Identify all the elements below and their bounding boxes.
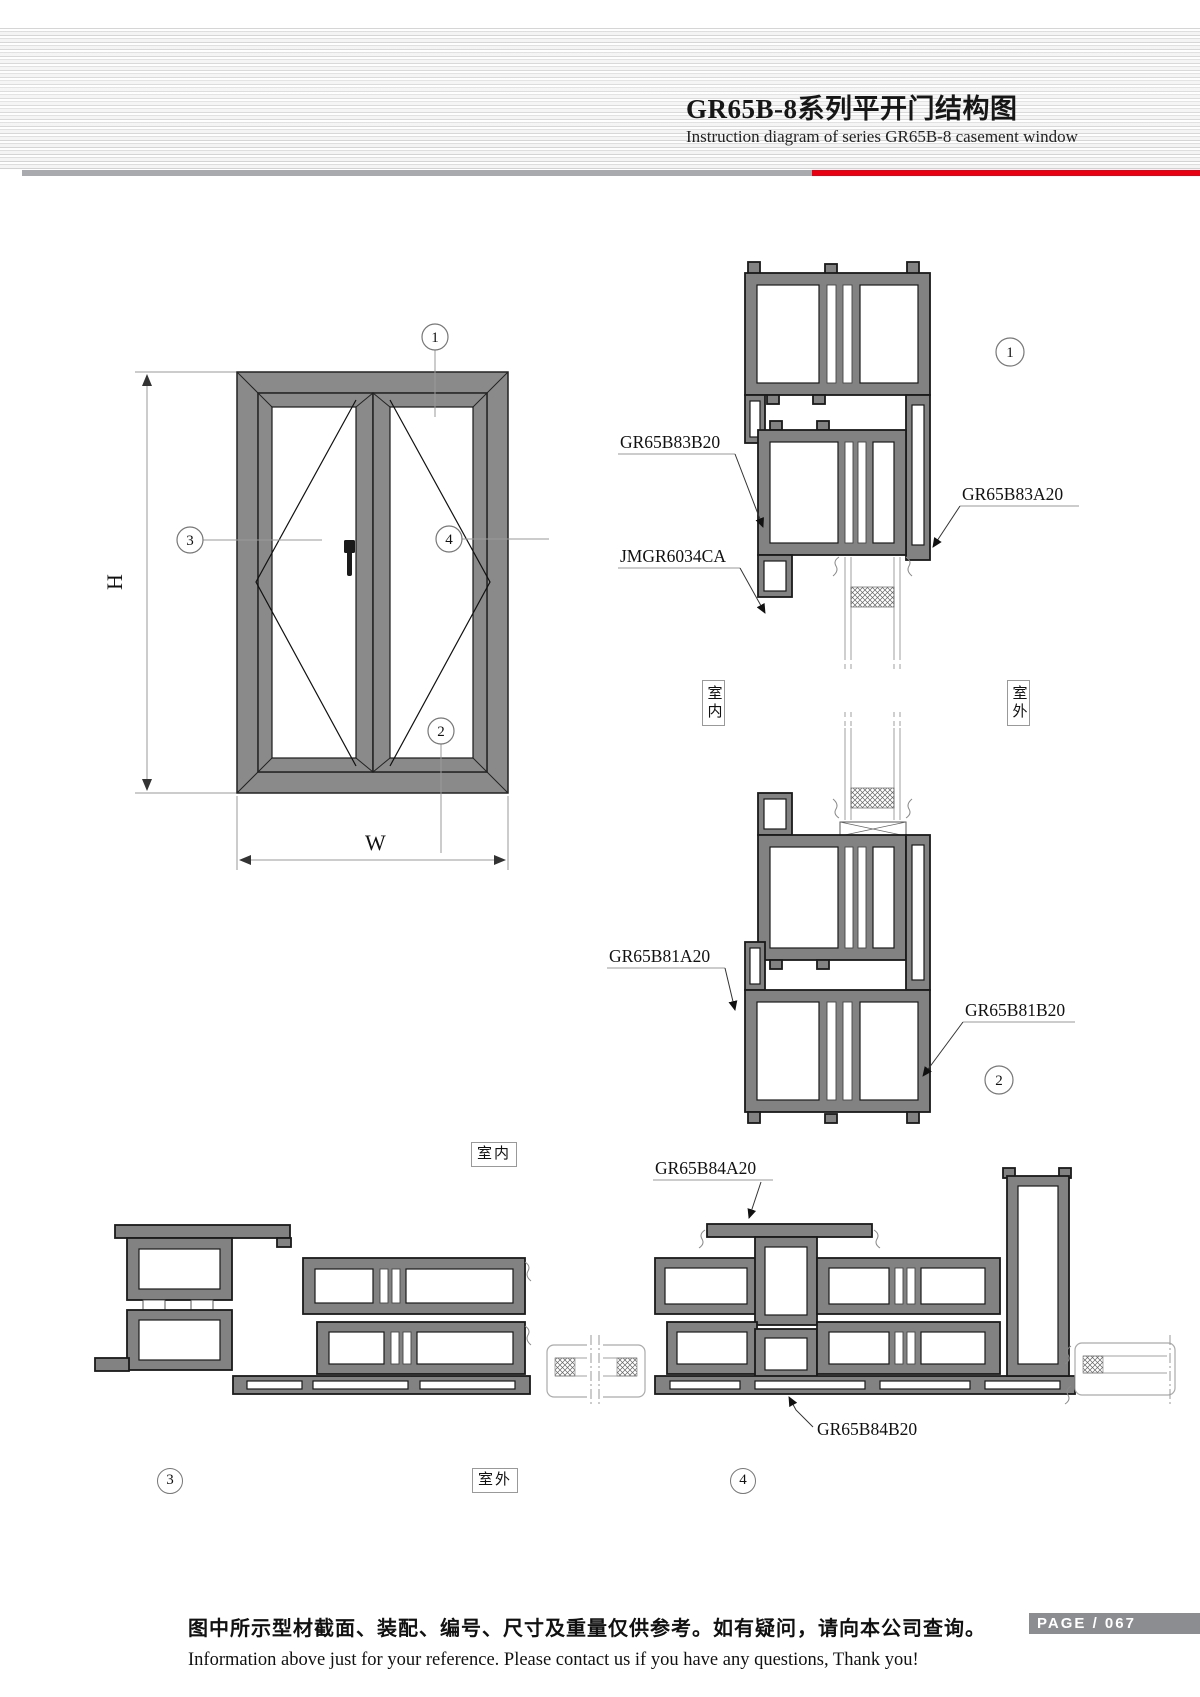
page-title: GR65B-8系列平开门结构图 bbox=[686, 94, 1166, 124]
section-marker-4: 4 bbox=[730, 1468, 756, 1494]
part-label-gr65b81a20: GR65B81A20 bbox=[607, 946, 735, 1010]
svg-text:1: 1 bbox=[1006, 345, 1014, 361]
section-2-drawing: GR65B81A20 GR65B81B20 2 bbox=[555, 690, 1115, 1140]
right-sash bbox=[373, 393, 490, 772]
section-marker-2: 2 bbox=[985, 1066, 1013, 1094]
part-label-gr65b83a20: GR65B83A20 bbox=[933, 484, 1079, 547]
svg-text:3: 3 bbox=[186, 533, 194, 549]
header-divider-gray bbox=[22, 170, 812, 176]
part-label-jmgr6034ca: JMGR6034CA bbox=[618, 546, 765, 613]
svg-text:GR65B84A20: GR65B84A20 bbox=[655, 1158, 756, 1178]
svg-text:GR65B81A20: GR65B81A20 bbox=[609, 946, 710, 966]
section-1-drawing: GR65B83B20 JMGR6034CA GR65B83A20 1 bbox=[555, 235, 1115, 685]
left-jamb-profile bbox=[95, 1225, 291, 1371]
section-marker-3: 3 bbox=[157, 1468, 183, 1494]
svg-text:2: 2 bbox=[437, 724, 445, 740]
footer-note-en: Information above just for your referenc… bbox=[188, 1650, 919, 1671]
part-label-gr65b81b20: GR65B81B20 bbox=[923, 1000, 1075, 1076]
header-divider-red bbox=[812, 170, 1200, 176]
page-number-label: PAGE / 067 bbox=[1029, 1613, 1200, 1634]
outdoor-label-bottom: 室外 bbox=[472, 1468, 518, 1493]
svg-text:GR65B83B20: GR65B83B20 bbox=[620, 432, 720, 452]
header: GR65B-8系列平开门结构图 Instruction diagram of s… bbox=[686, 94, 1166, 146]
h-dimension: H bbox=[102, 372, 242, 793]
svg-text:4: 4 bbox=[445, 532, 453, 548]
svg-text:GR65B84B20: GR65B84B20 bbox=[817, 1419, 917, 1439]
svg-text:GR65B83A20: GR65B83A20 bbox=[962, 484, 1063, 504]
dim-label-w: W bbox=[365, 830, 386, 855]
svg-text:GR65B81B20: GR65B81B20 bbox=[965, 1000, 1065, 1020]
left-leaf-profile bbox=[233, 1258, 531, 1394]
part-label-gr65b84a20: GR65B84A20 bbox=[653, 1158, 773, 1218]
part-label-gr65b83b20: GR65B83B20 bbox=[618, 432, 763, 527]
elevation-drawing: H W bbox=[60, 290, 570, 890]
svg-text:JMGR6034CA: JMGR6034CA bbox=[620, 546, 726, 566]
catalog-page: GR65B-8系列平开门结构图 Instruction diagram of s… bbox=[0, 0, 1200, 1697]
glazing-unit bbox=[833, 712, 912, 836]
indoor-label-bottom: 室内 bbox=[471, 1142, 517, 1167]
sash-top-profile bbox=[758, 421, 906, 597]
svg-text:2: 2 bbox=[995, 1073, 1003, 1089]
section-marker-1: 1 bbox=[996, 338, 1024, 366]
part-label-gr65b84b20: GR65B84B20 bbox=[789, 1397, 917, 1439]
svg-text:1: 1 bbox=[431, 330, 439, 346]
footer-note-zh: 图中所示型材截面、装配、编号、尺寸及重量仅供参考。如有疑问，请向本公司查询。 bbox=[188, 1612, 986, 1641]
w-dimension: W bbox=[237, 796, 508, 870]
glass-panel-mid bbox=[547, 1335, 645, 1407]
right-jamb-profile bbox=[1003, 1168, 1071, 1376]
section-3-4-drawing: GR65B84A20 GR65B84B20 bbox=[55, 1130, 1200, 1460]
glazing-unit bbox=[833, 557, 912, 673]
left-sash bbox=[256, 393, 373, 772]
page-number-bar: PAGE / 067 bbox=[1029, 1613, 1200, 1634]
dim-label-h: H bbox=[102, 574, 127, 590]
sash-bottom-profile bbox=[758, 793, 906, 969]
glass-panel-right bbox=[1065, 1335, 1175, 1405]
page-subtitle: Instruction diagram of series GR65B-8 ca… bbox=[686, 127, 1166, 146]
